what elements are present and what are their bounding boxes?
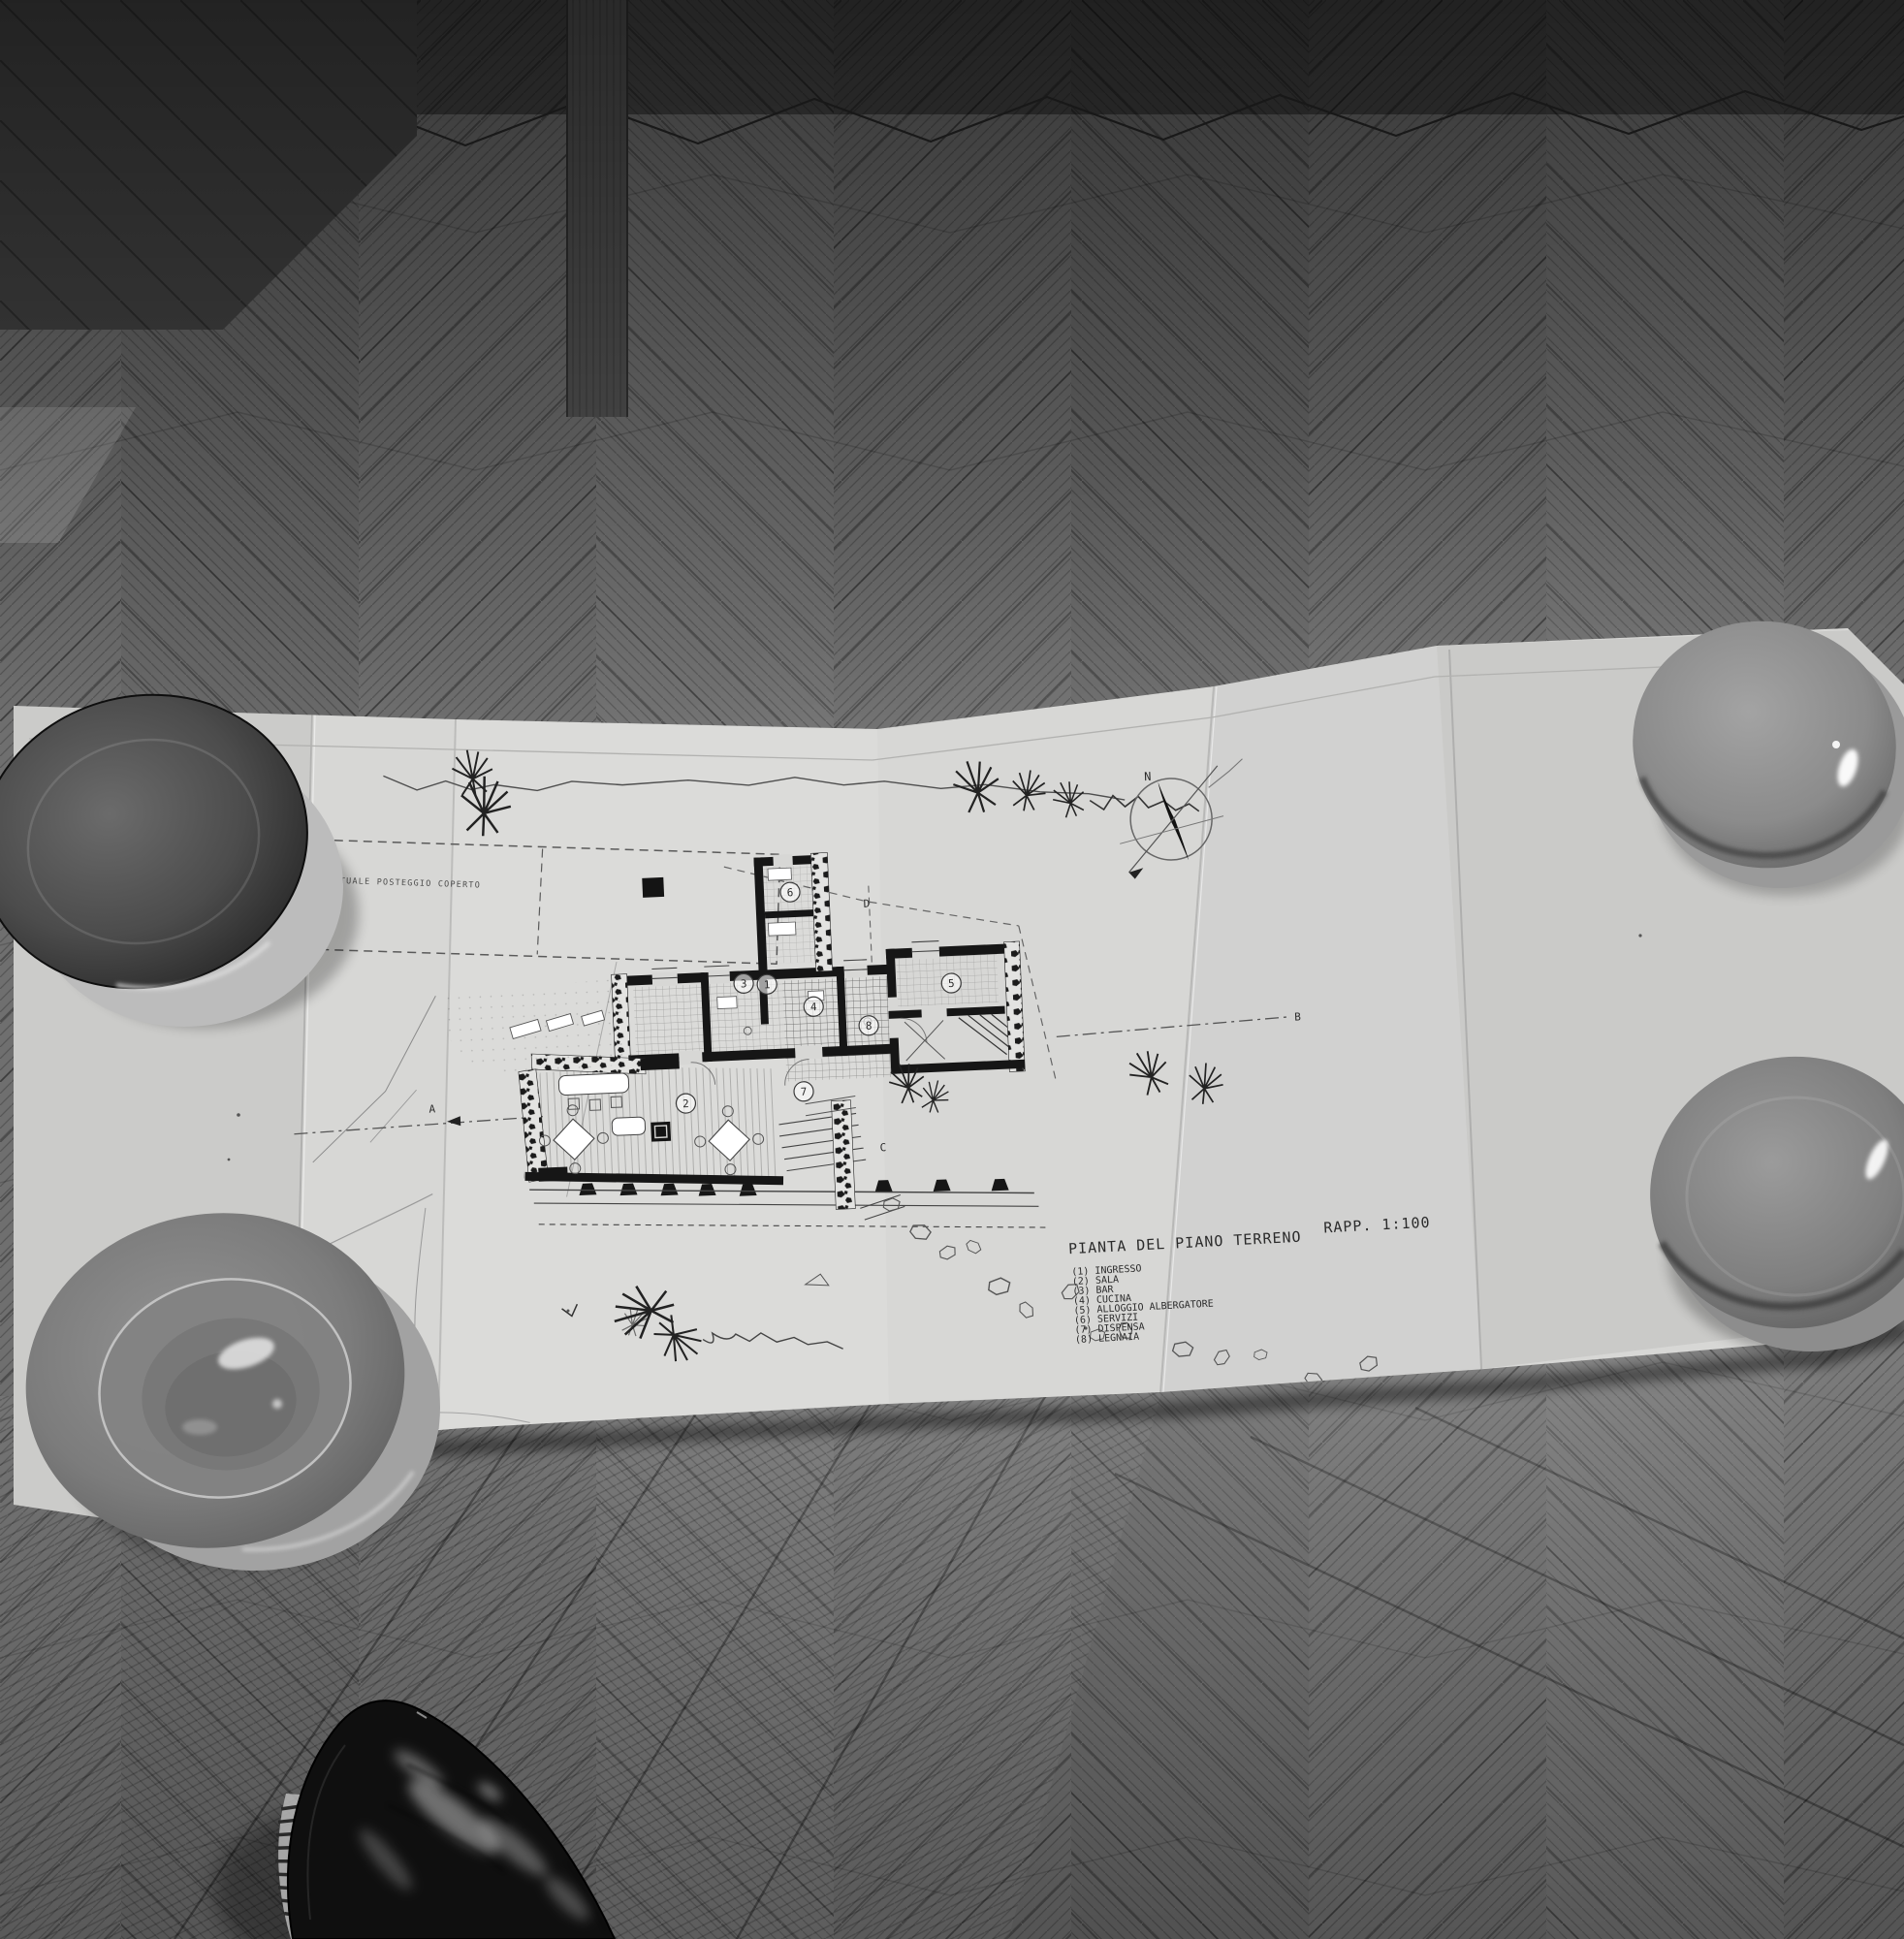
room-number: 6 [786,886,793,899]
room-number: 7 [800,1086,807,1098]
room-number: 2 [682,1097,689,1110]
section-marker-a: A [428,1102,436,1115]
room-number: 3 [741,977,747,990]
section-marker-b: B [1294,1010,1302,1023]
photo-scene: EVENTUALE POSTEGGIO COPERTO [0,0,1904,1939]
room-number: 1 [764,978,771,991]
chimney [642,877,664,898]
room-number: 8 [866,1020,873,1033]
photo-canvas: EVENTUALE POSTEGGIO COPERTO [0,0,1904,1939]
room-number: 5 [948,977,955,990]
room-number: 4 [810,1001,818,1013]
section-marker-c: C [879,1141,886,1154]
north-label: N [1144,770,1152,783]
section-marker-d: D [863,898,870,910]
